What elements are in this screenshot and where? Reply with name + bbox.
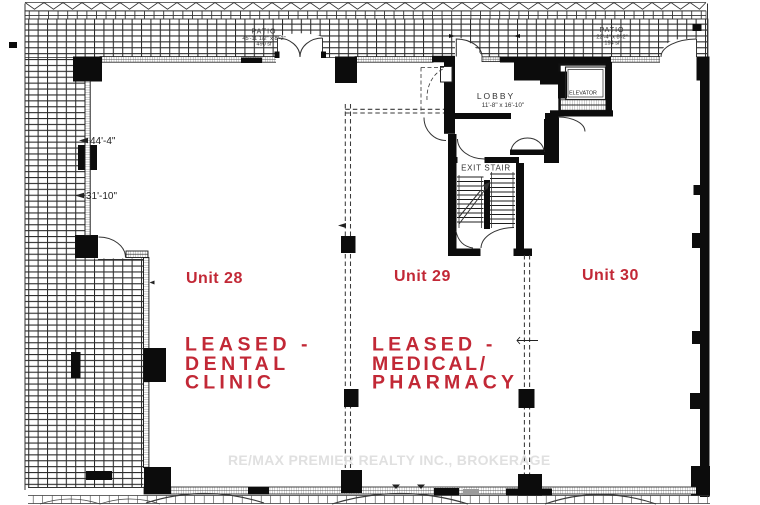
svg-text:PATIO: PATIO bbox=[600, 27, 625, 34]
svg-text:PHARMACY: PHARMACY bbox=[372, 372, 518, 394]
svg-text:RE/MAX PREMIER REALTY INC., BR: RE/MAX PREMIER REALTY INC., BROKERAGE bbox=[228, 452, 551, 468]
svg-text:Unit 28: Unit 28 bbox=[186, 270, 243, 287]
svg-text:CLINIC: CLINIC bbox=[185, 372, 275, 394]
svg-text:Unit 29: Unit 29 bbox=[394, 268, 451, 285]
svg-text:31'-10": 31'-10" bbox=[86, 191, 117, 202]
svg-text:11'-8" x 16'-10": 11'-8" x 16'-10" bbox=[482, 102, 524, 109]
svg-text:EXIT STAIR: EXIT STAIR bbox=[461, 164, 511, 173]
svg-text:490 sf: 490 sf bbox=[256, 42, 272, 48]
svg-text:Unit 30: Unit 30 bbox=[582, 267, 639, 284]
svg-text:194 sf: 194 sf bbox=[604, 41, 620, 47]
svg-text:PATIO: PATIO bbox=[252, 29, 277, 36]
svg-text:ELEVATOR: ELEVATOR bbox=[569, 91, 597, 97]
svg-text:44'-4": 44'-4" bbox=[90, 136, 116, 147]
svg-text:LOBBY: LOBBY bbox=[477, 91, 515, 101]
